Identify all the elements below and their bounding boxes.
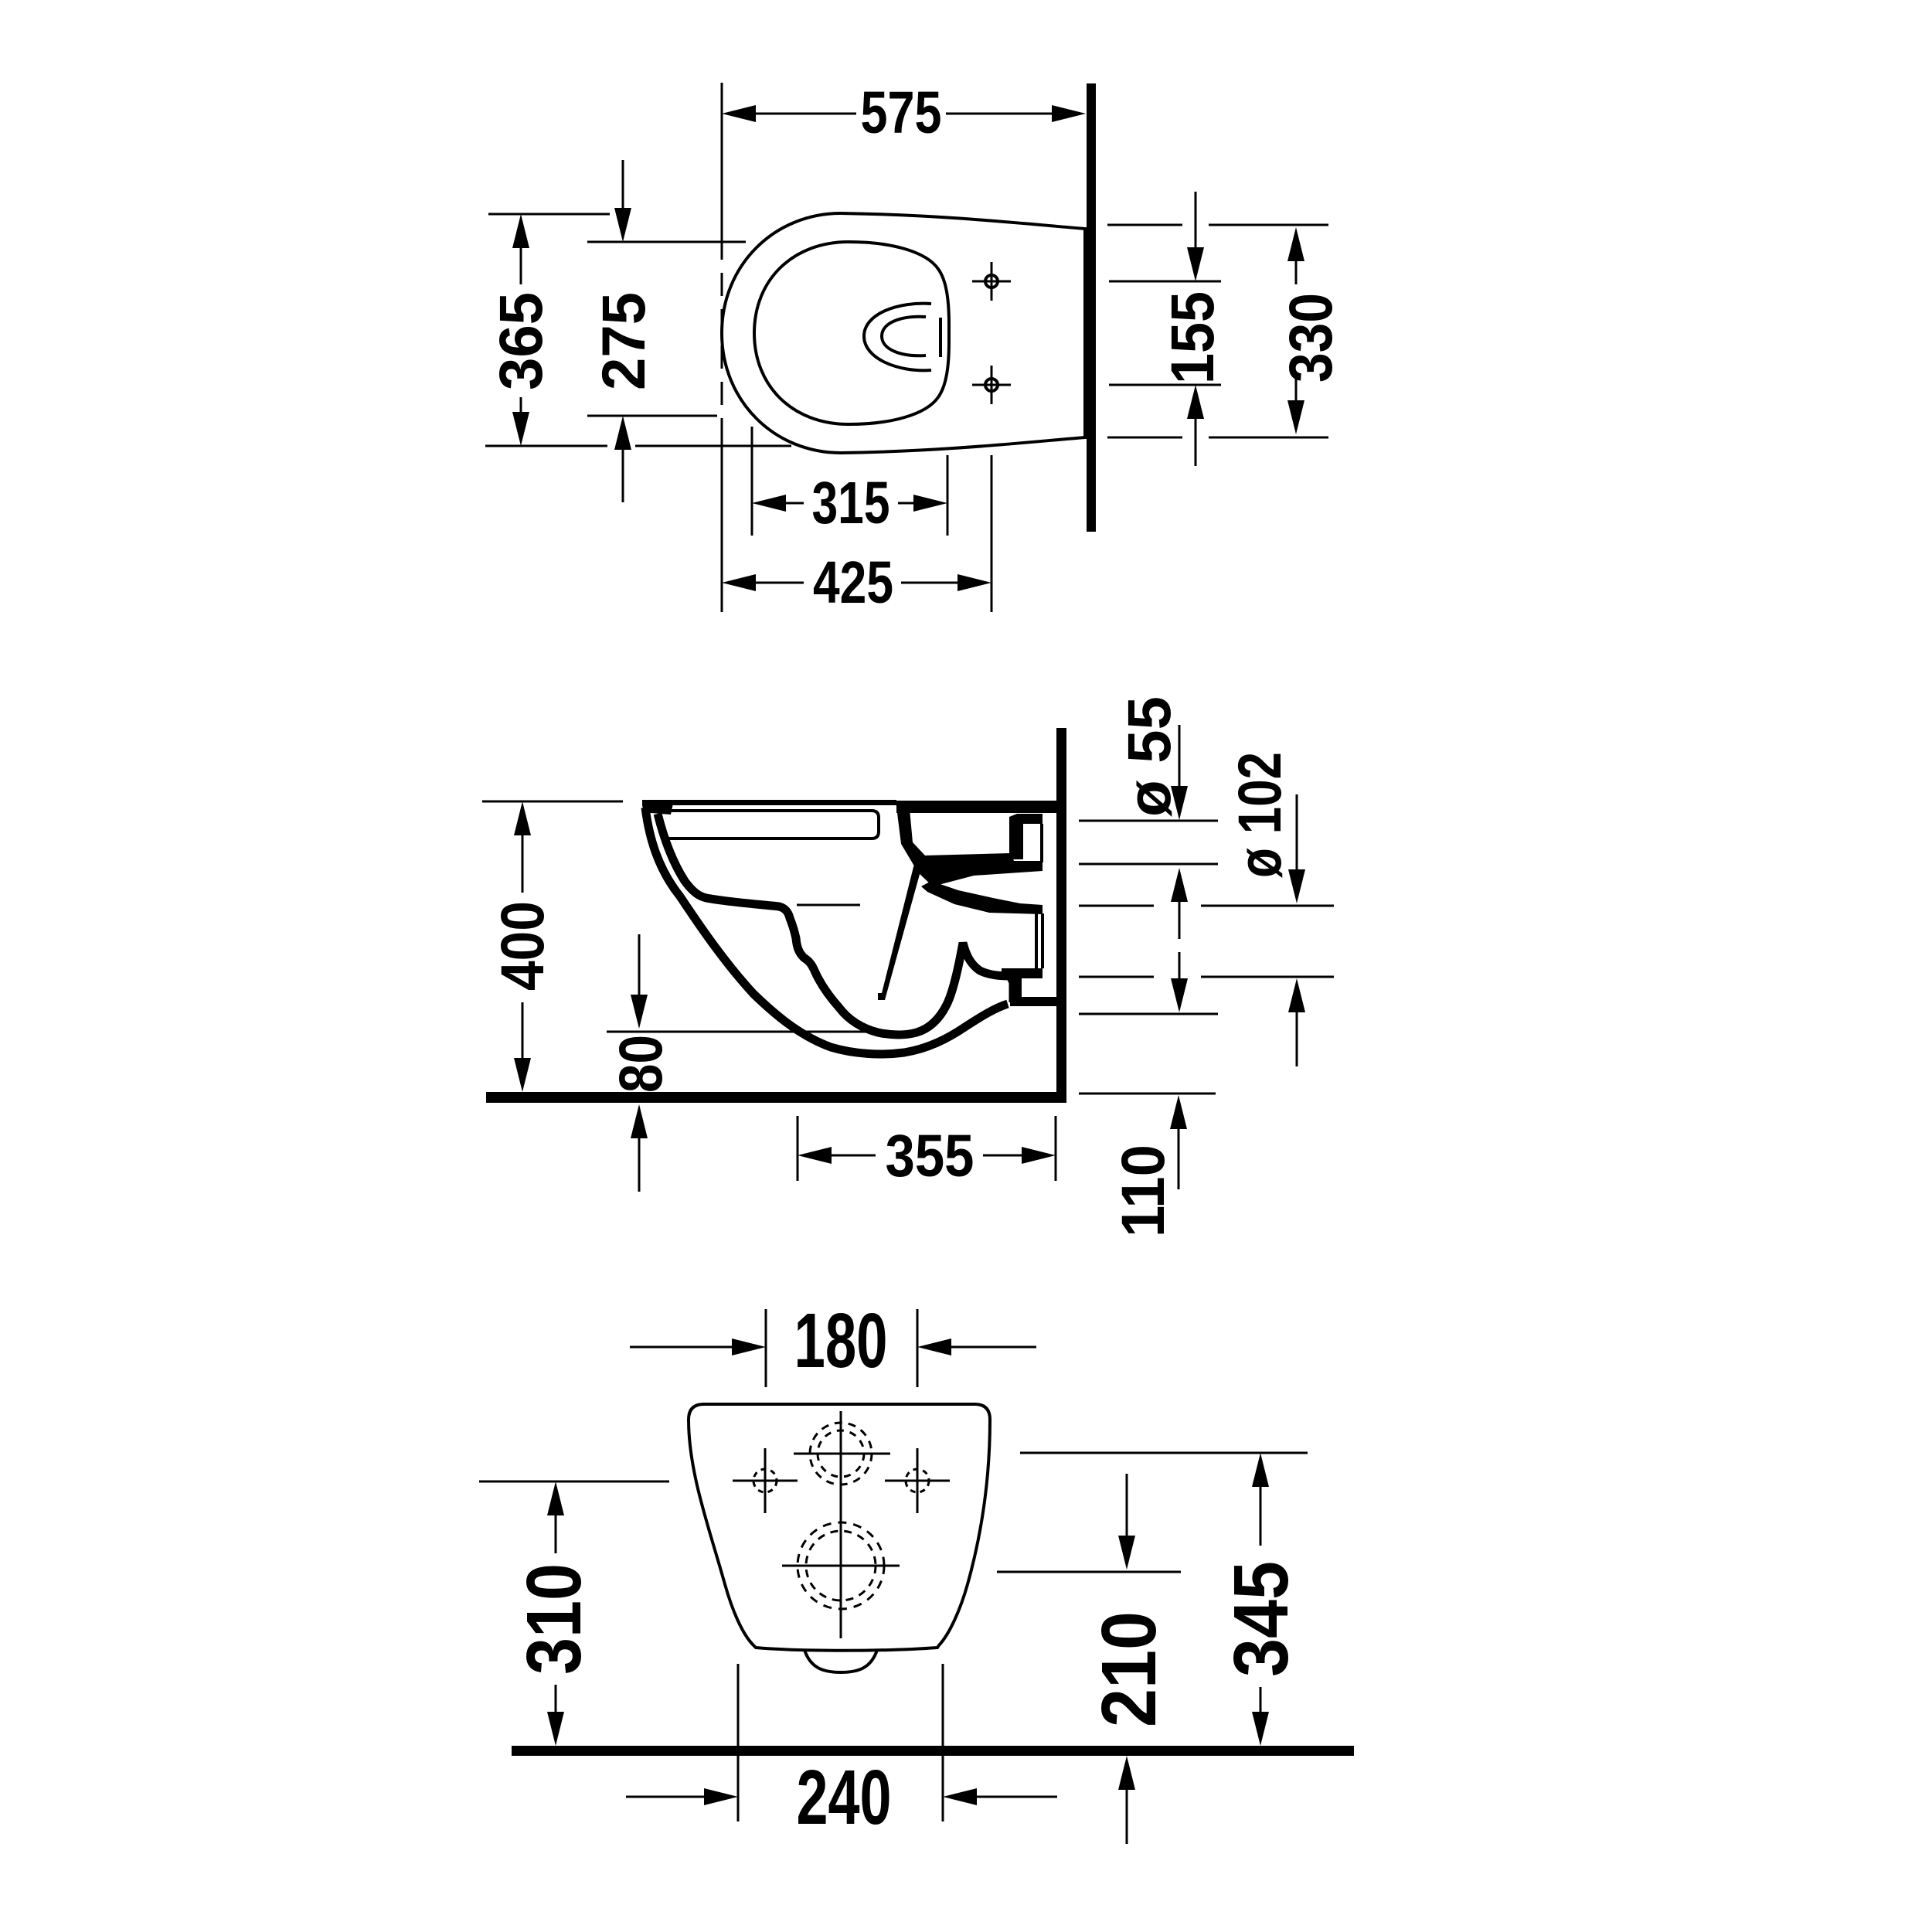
svg-text:ø 55: ø 55 (1114, 696, 1183, 817)
svg-text:345: 345 (1218, 1561, 1304, 1677)
svg-text:180: 180 (794, 1298, 888, 1384)
svg-text:80: 80 (606, 1035, 675, 1093)
svg-text:315: 315 (812, 470, 890, 536)
svg-text:400: 400 (488, 901, 556, 991)
svg-text:240: 240 (797, 1754, 892, 1841)
svg-text:355: 355 (886, 1123, 975, 1189)
svg-text:330: 330 (1276, 293, 1345, 383)
svg-text:ø 102: ø 102 (1225, 752, 1294, 878)
svg-text:110: 110 (1108, 1145, 1177, 1237)
svg-text:275: 275 (589, 292, 658, 390)
svg-text:210: 210 (1086, 1611, 1172, 1727)
svg-text:365: 365 (486, 292, 555, 390)
svg-text:425: 425 (813, 549, 893, 616)
svg-text:310: 310 (511, 1563, 597, 1675)
svg-text:575: 575 (861, 80, 942, 146)
svg-text:155: 155 (1158, 291, 1226, 384)
